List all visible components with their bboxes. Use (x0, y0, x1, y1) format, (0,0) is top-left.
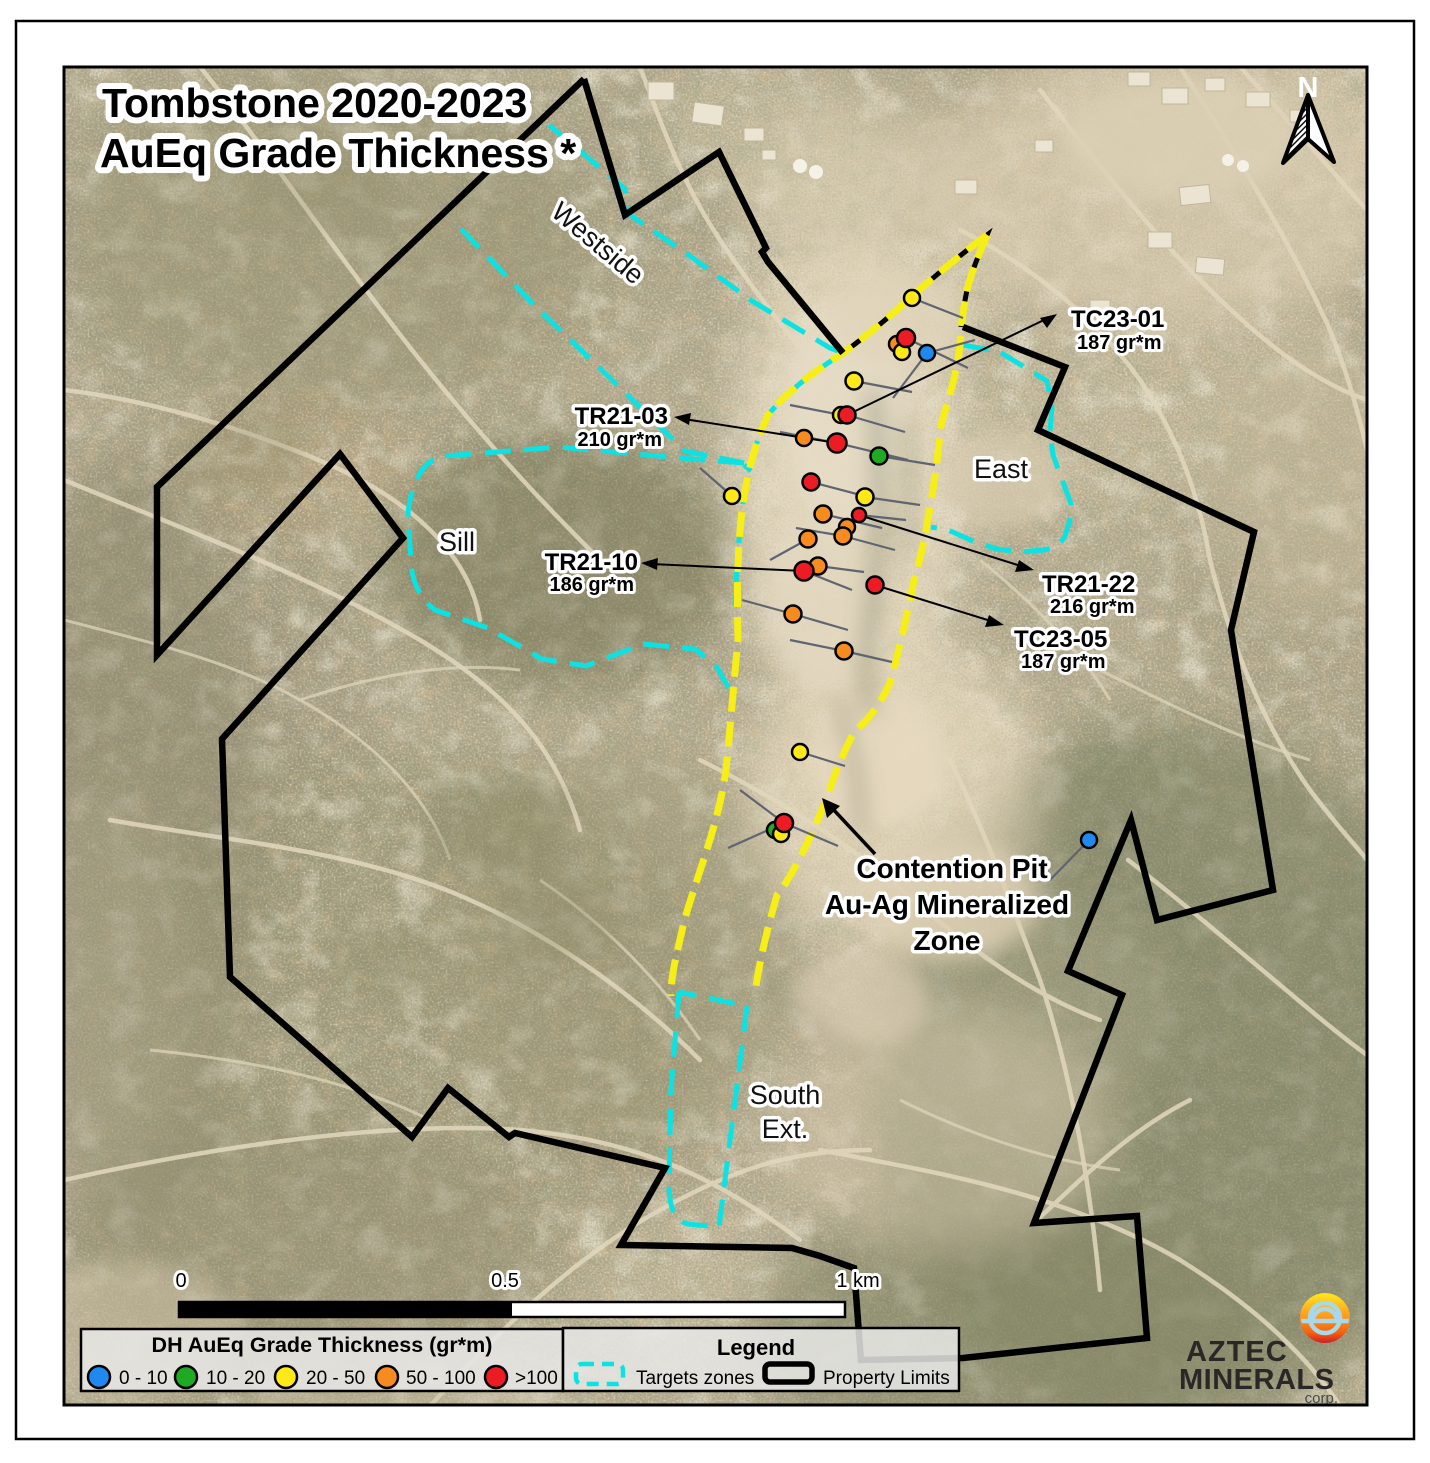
svg-text:187 gr*m: 187 gr*m (1021, 651, 1106, 673)
svg-text:216 gr*m: 216 gr*m (1050, 596, 1135, 618)
svg-text:0: 0 (175, 1270, 186, 1292)
svg-text:Au-Ag Mineralized: Au-Ag Mineralized (825, 889, 1069, 920)
svg-text:TR21-22: TR21-22 (1042, 571, 1135, 598)
svg-text:Legend: Legend (717, 1335, 795, 1360)
svg-text:Contention Pit: Contention Pit (856, 853, 1047, 884)
svg-text:East: East (974, 454, 1029, 484)
svg-text:50 - 100: 50 - 100 (406, 1368, 476, 1389)
svg-text:Ext.: Ext. (762, 1114, 809, 1144)
svg-text:South: South (750, 1080, 821, 1110)
svg-text:Targets zones: Targets zones (636, 1368, 754, 1389)
svg-text:20 - 50: 20 - 50 (306, 1368, 365, 1389)
svg-text:187 gr*m: 187 gr*m (1077, 332, 1162, 354)
svg-text:>100: >100 (515, 1368, 558, 1389)
svg-text:AuEq Grade Thickness *: AuEq Grade Thickness * (100, 130, 576, 176)
svg-text:0 - 10: 0 - 10 (119, 1368, 168, 1389)
svg-text:186 gr*m: 186 gr*m (550, 574, 635, 596)
svg-text:Tombstone 2020-2023: Tombstone 2020-2023 (102, 80, 527, 126)
svg-text:Sill: Sill (439, 527, 475, 557)
svg-text:10 - 20: 10 - 20 (206, 1368, 265, 1389)
svg-text:1 km: 1 km (836, 1270, 879, 1292)
svg-text:210 gr*m: 210 gr*m (578, 429, 663, 451)
svg-text:TC23-01: TC23-01 (1071, 306, 1164, 333)
svg-text:TR21-03: TR21-03 (575, 403, 668, 430)
svg-text:TC23-05: TC23-05 (1014, 626, 1107, 653)
svg-text:0.5: 0.5 (491, 1270, 519, 1292)
svg-text:N: N (1298, 72, 1319, 104)
svg-text:Zone: Zone (914, 925, 981, 956)
svg-text:TR21-10: TR21-10 (545, 549, 638, 576)
svg-text:DH AuEq Grade Thickness (gr*m): DH AuEq Grade Thickness (gr*m) (152, 1333, 493, 1357)
svg-text:Property Limits: Property Limits (823, 1368, 950, 1389)
